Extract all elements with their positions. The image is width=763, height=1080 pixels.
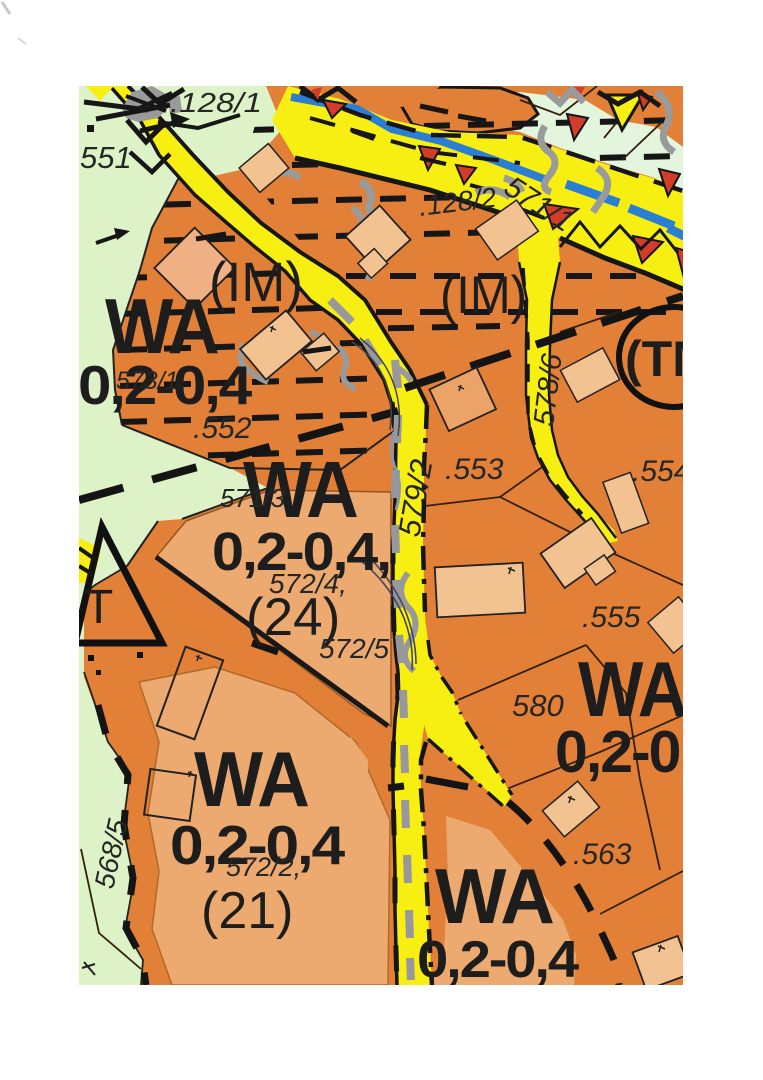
svg-text:572/2,: 572/2,: [226, 852, 301, 882]
svg-text:572/5: 572/5: [319, 633, 389, 664]
svg-text:WA: WA: [194, 735, 309, 823]
svg-text:WA: WA: [435, 852, 554, 940]
svg-text:.555: .555: [582, 601, 641, 634]
svg-text:(21): (21): [201, 882, 293, 940]
svg-text:(IM): (IM): [209, 250, 303, 313]
svg-text:580: 580: [512, 688, 564, 723]
svg-text:.128/1: .128/1: [170, 87, 262, 118]
svg-text:571/3: 571/3: [220, 483, 286, 513]
svg-text:551: 551: [80, 140, 132, 175]
svg-text:0,2-0,4: 0,2-0,4: [417, 931, 579, 989]
svg-text:.553: .553: [445, 453, 504, 486]
svg-text:.552: .552: [193, 412, 252, 445]
svg-text:0,2-0: 0,2-0: [555, 719, 680, 785]
svg-text:.554: .554: [632, 455, 690, 488]
svg-text:573/1: 573/1: [116, 367, 179, 395]
svg-text:(IM): (IM): [440, 266, 527, 325]
svg-text:T: T: [84, 581, 113, 634]
svg-text:.563: .563: [573, 838, 632, 871]
